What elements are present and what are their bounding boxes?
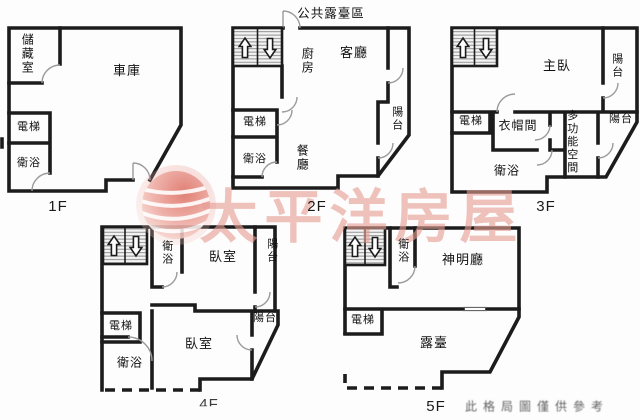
floor-label-2f: 2F <box>307 199 327 215</box>
label-f4-bedroom: 臥室 <box>185 337 213 351</box>
label-f5-shrine: 神明廳 <box>442 253 484 267</box>
label-f3-bath: 衛浴 <box>494 165 520 178</box>
3f-stairs-icon <box>452 28 497 66</box>
label-f1-elevator: 電梯 <box>17 122 41 134</box>
label-f2-elevator: 電梯 <box>243 117 267 129</box>
label-f4-balcony-mid: 陽台 <box>253 313 277 325</box>
label-f3-balcony-mid: 陽台 <box>609 114 633 126</box>
4f-stairs-icon <box>103 227 147 264</box>
floor-label-1f: 1F <box>48 199 68 215</box>
label-f3-multi: 多功能空間 <box>565 110 577 175</box>
watermark-brand-text: 太平洋房屋 <box>199 170 524 254</box>
label-f2-public-terrace: 公共露臺區 <box>297 7 365 20</box>
label-f4-balcony-top: 陽台 <box>265 238 277 264</box>
label-f2-bath: 衛浴 <box>243 154 267 166</box>
label-f3-balcony-top: 陽台 <box>610 53 622 79</box>
label-f5-bath: 衛浴 <box>396 238 408 264</box>
disclaimer-text: 此格局圖僅供參考 <box>465 398 609 415</box>
label-f1-storage: 儲藏室 <box>21 33 34 75</box>
label-f3-master: 主臥 <box>543 59 571 73</box>
label-f4-bedroom-top: 臥室 <box>209 250 237 264</box>
floor-label-5f: 5F <box>426 399 446 415</box>
5f-dashed-terrace-edge <box>345 374 442 388</box>
label-f1-garage: 車庫 <box>113 64 141 78</box>
label-f2-balcony: 陽台 <box>390 106 402 132</box>
label-f5-elevator: 電梯 <box>351 315 375 327</box>
label-f1-bath: 衛浴 <box>17 158 41 170</box>
label-f5-terrace: 露臺 <box>420 336 448 350</box>
label-f2-dining: 餐廳 <box>296 144 309 172</box>
5f-window-symbol <box>463 307 487 310</box>
2f-stairs-icon <box>233 28 282 66</box>
label-f3-closet: 衣帽間 <box>498 120 537 133</box>
5f-door-arcs <box>398 266 415 283</box>
label-f2-kitchen: 廚房 <box>301 47 314 75</box>
floorplan-image: 太平洋房屋 儲藏室 車庫 電梯 衛浴 1F 公共露臺區 廚房 客廳 電梯 衛浴 … <box>0 0 640 420</box>
label-f3-elevator: 電梯 <box>459 116 483 128</box>
floor-label-3f: 3F <box>536 199 556 215</box>
label-f4-bath-top: 衛浴 <box>160 240 172 266</box>
label-f2-living: 客廳 <box>340 46 368 60</box>
label-f4-bath: 衛浴 <box>117 357 143 370</box>
label-f4-elevator: 電梯 <box>109 321 133 333</box>
